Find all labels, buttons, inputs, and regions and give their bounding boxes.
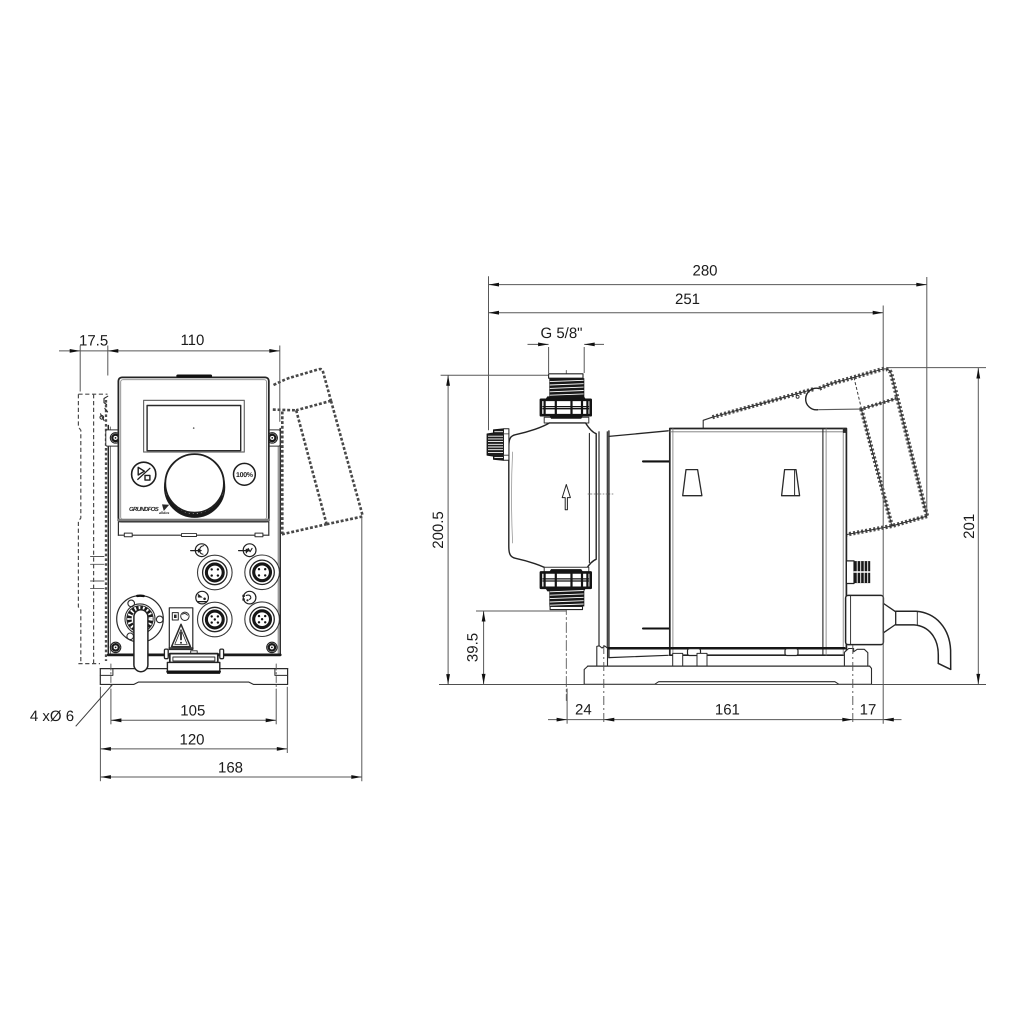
svg-text:GRUNDFOS: GRUNDFOS — [129, 506, 159, 513]
svg-text:120: 120 — [179, 731, 204, 748]
svg-text:100%: 100% — [236, 472, 254, 479]
svg-text:4 xØ 6: 4 xØ 6 — [30, 708, 74, 725]
svg-text:17: 17 — [860, 702, 877, 719]
svg-text:168: 168 — [218, 760, 243, 777]
svg-text:200.5: 200.5 — [430, 511, 447, 549]
svg-text:161: 161 — [715, 702, 740, 719]
svg-text:251: 251 — [675, 291, 700, 308]
svg-text:201: 201 — [961, 514, 978, 539]
svg-text:105: 105 — [180, 703, 205, 720]
svg-text:39.5: 39.5 — [465, 633, 482, 662]
svg-text:alldos: alldos — [159, 511, 169, 515]
svg-text:110: 110 — [180, 332, 204, 349]
svg-text:280: 280 — [692, 263, 717, 280]
svg-text:24: 24 — [575, 702, 592, 719]
svg-text:17.5: 17.5 — [79, 332, 108, 349]
svg-text:G 5/8": G 5/8" — [540, 325, 582, 342]
